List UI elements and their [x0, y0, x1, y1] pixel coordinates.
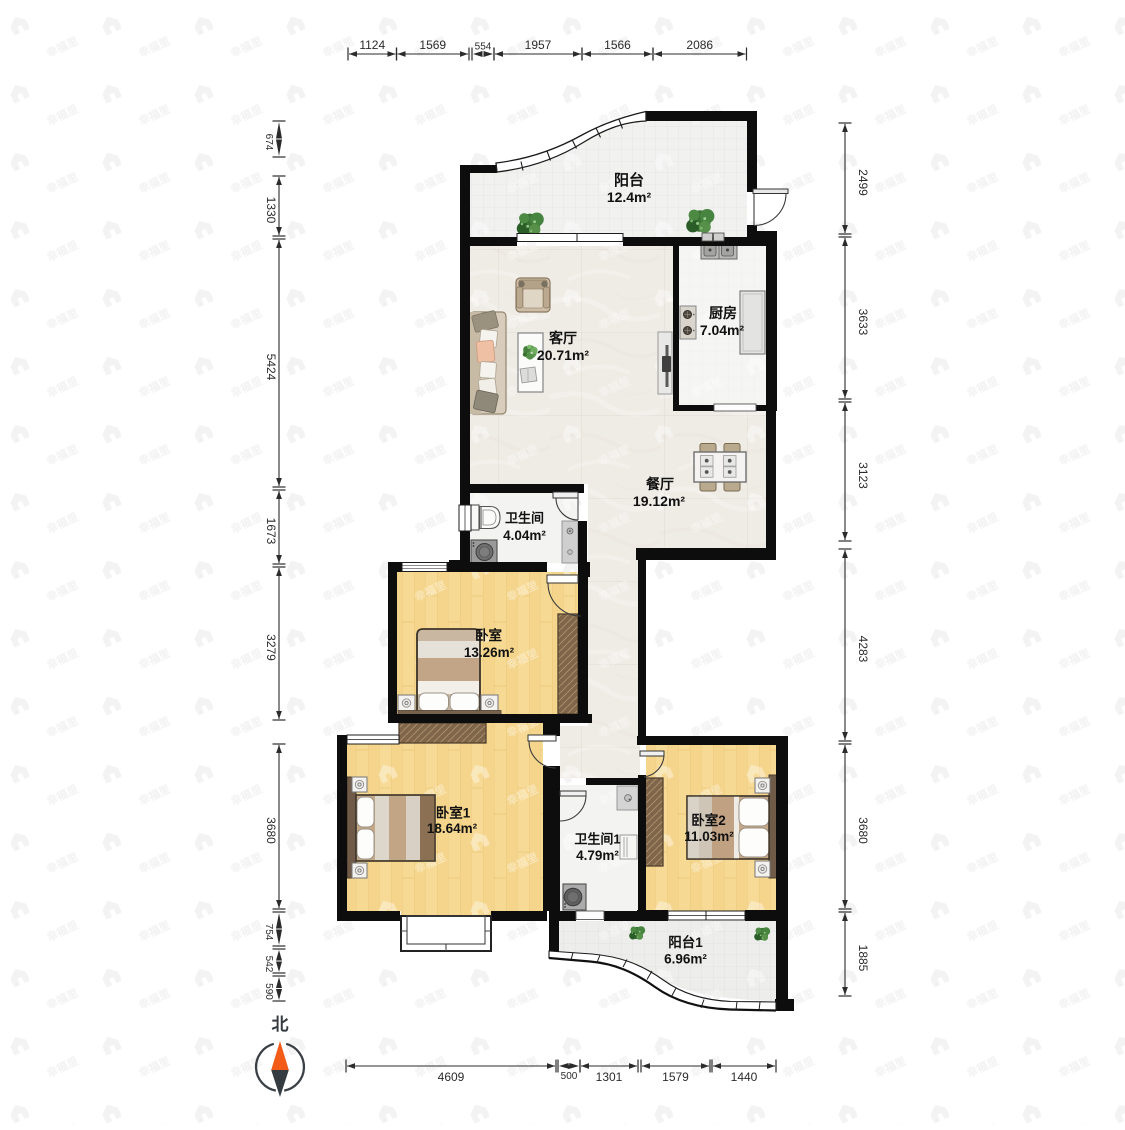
svg-text:7.04m²: 7.04m²	[700, 322, 745, 338]
svg-text:4609: 4609	[438, 1070, 465, 1084]
svg-text:客厅: 客厅	[548, 330, 577, 346]
svg-text:1885: 1885	[856, 945, 870, 972]
svg-text:1579: 1579	[662, 1070, 689, 1084]
svg-text:6.96m²: 6.96m²	[664, 952, 707, 967]
svg-text:590: 590	[263, 983, 274, 1000]
svg-text:阳台1: 阳台1	[668, 934, 703, 950]
svg-text:3680: 3680	[264, 817, 278, 844]
svg-text:4.79m²: 4.79m²	[576, 848, 619, 863]
svg-text:542: 542	[263, 956, 274, 973]
svg-text:13.26m²: 13.26m²	[464, 645, 515, 660]
svg-text:5424: 5424	[264, 354, 278, 381]
svg-text:2086: 2086	[686, 38, 713, 52]
svg-text:12.4m²: 12.4m²	[607, 189, 652, 205]
svg-text:4283: 4283	[856, 636, 870, 663]
svg-text:19.12m²: 19.12m²	[633, 493, 685, 509]
svg-text:3680: 3680	[856, 817, 870, 844]
svg-text:4.04m²: 4.04m²	[503, 528, 546, 543]
svg-text:卧室2: 卧室2	[691, 812, 726, 828]
svg-text:554: 554	[475, 42, 492, 53]
svg-text:阳台: 阳台	[614, 171, 644, 189]
svg-text:20.71m²: 20.71m²	[537, 347, 589, 363]
svg-text:11.03m²: 11.03m²	[684, 829, 734, 844]
svg-text:674: 674	[263, 134, 274, 151]
svg-text:1440: 1440	[731, 1070, 758, 1084]
svg-text:3123: 3123	[856, 462, 870, 489]
svg-text:卧室1: 卧室1	[436, 805, 471, 821]
svg-text:1330: 1330	[264, 197, 278, 224]
svg-text:1569: 1569	[419, 38, 446, 52]
svg-text:厨房: 厨房	[709, 305, 737, 321]
svg-text:卧室: 卧室	[475, 627, 502, 643]
svg-text:3633: 3633	[856, 309, 870, 336]
svg-text:500: 500	[561, 1071, 578, 1082]
svg-text:3279: 3279	[264, 634, 278, 661]
svg-text:1673: 1673	[264, 518, 278, 545]
svg-text:北: 北	[272, 1015, 289, 1034]
svg-text:1566: 1566	[604, 38, 631, 52]
svg-text:卫生间: 卫生间	[505, 511, 544, 526]
svg-text:1957: 1957	[525, 38, 552, 52]
svg-text:餐厅: 餐厅	[645, 476, 674, 492]
svg-text:18.64m²: 18.64m²	[427, 821, 478, 836]
svg-text:754: 754	[263, 924, 274, 941]
svg-text:2499: 2499	[856, 169, 870, 196]
svg-text:1301: 1301	[596, 1070, 623, 1084]
svg-text:1124: 1124	[359, 38, 385, 52]
svg-text:卫生间1: 卫生间1	[574, 832, 620, 847]
